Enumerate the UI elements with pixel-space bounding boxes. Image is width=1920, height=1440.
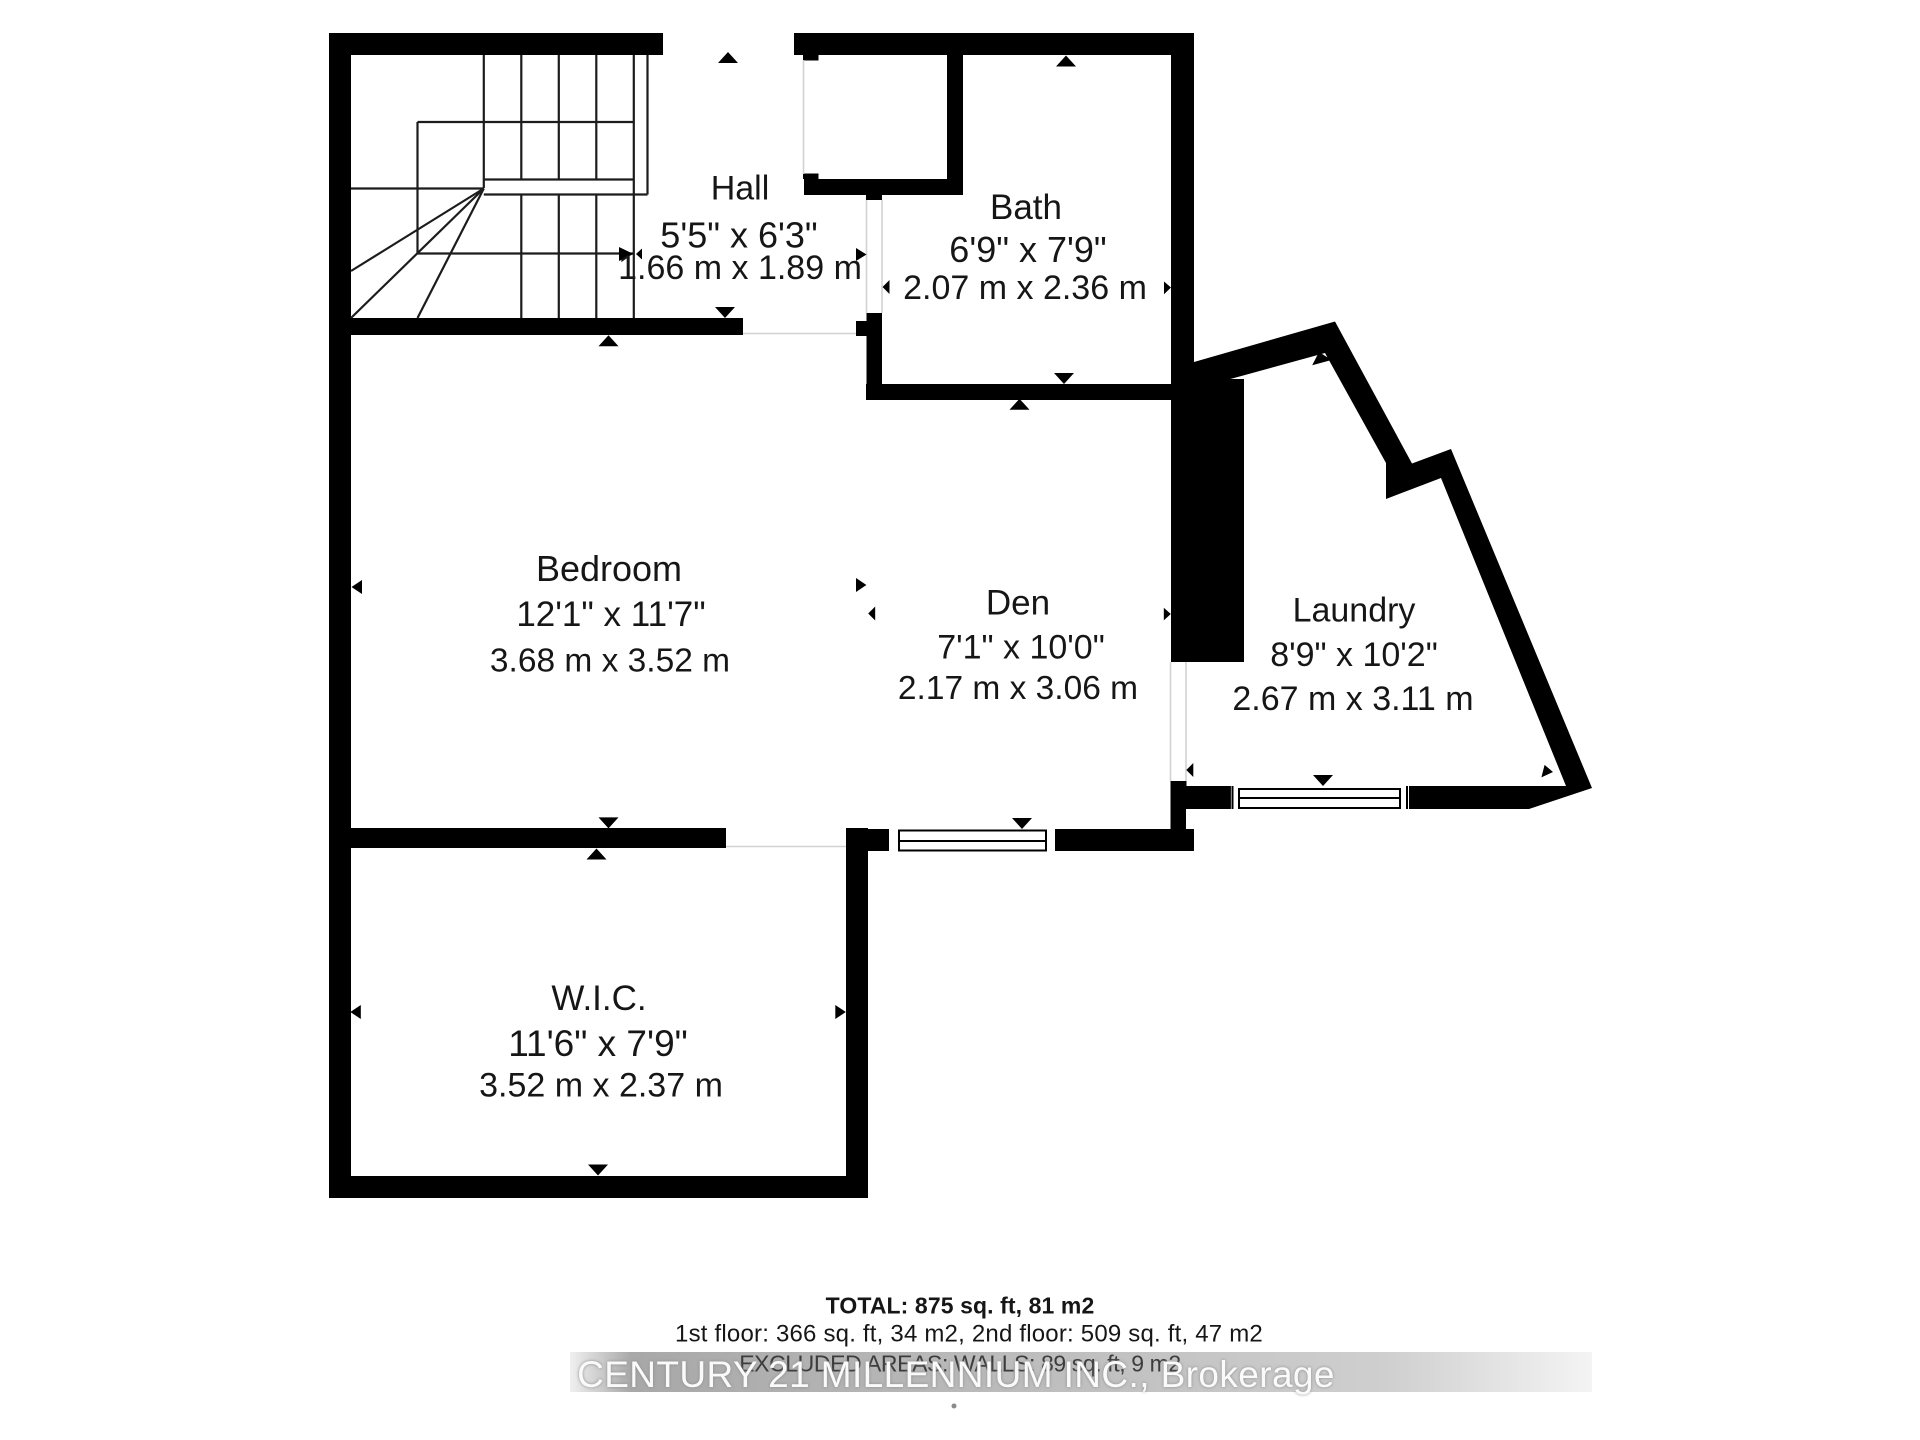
svg-text:Laundry: Laundry [1293, 592, 1416, 630]
svg-text:Den: Den [986, 584, 1050, 623]
svg-text:2.07 m x 2.36 m: 2.07 m x 2.36 m [903, 269, 1147, 307]
svg-text:2.17 m x 3.06 m: 2.17 m x 3.06 m [898, 670, 1138, 707]
svg-text:8'9" x 10'2": 8'9" x 10'2" [1270, 636, 1438, 674]
svg-text:Bedroom: Bedroom [536, 548, 682, 589]
svg-text:1.66 m x 1.89 m: 1.66 m x 1.89 m [618, 249, 862, 287]
svg-text:Hall: Hall [711, 169, 770, 207]
svg-text:2.67 m x 3.11 m: 2.67 m x 3.11 m [1232, 680, 1473, 718]
svg-text:3.68 m x 3.52 m: 3.68 m x 3.52 m [490, 643, 730, 680]
svg-text:11'6" x 7'9": 11'6" x 7'9" [508, 1023, 688, 1064]
svg-text:7'1" x 10'0": 7'1" x 10'0" [937, 629, 1105, 667]
svg-text:TOTAL: 875 sq. ft, 81 m2: TOTAL: 875 sq. ft, 81 m2 [826, 1292, 1095, 1318]
svg-text:3.52 m x 2.37 m: 3.52 m x 2.37 m [479, 1066, 723, 1104]
svg-text:1st floor: 366 sq. ft, 34 m2,: 1st floor: 366 sq. ft, 34 m2, 2nd floor:… [675, 1321, 1263, 1348]
svg-text:6'9" x 7'9": 6'9" x 7'9" [949, 229, 1106, 270]
svg-text:12'1" x 11'7": 12'1" x 11'7" [516, 595, 705, 634]
svg-text:CENTURY 21 MILLENNIUM INC., Br: CENTURY 21 MILLENNIUM INC., Brokerage [577, 1354, 1335, 1395]
svg-text:Bath: Bath [990, 188, 1062, 227]
svg-text:W.I.C.: W.I.C. [551, 979, 646, 1018]
